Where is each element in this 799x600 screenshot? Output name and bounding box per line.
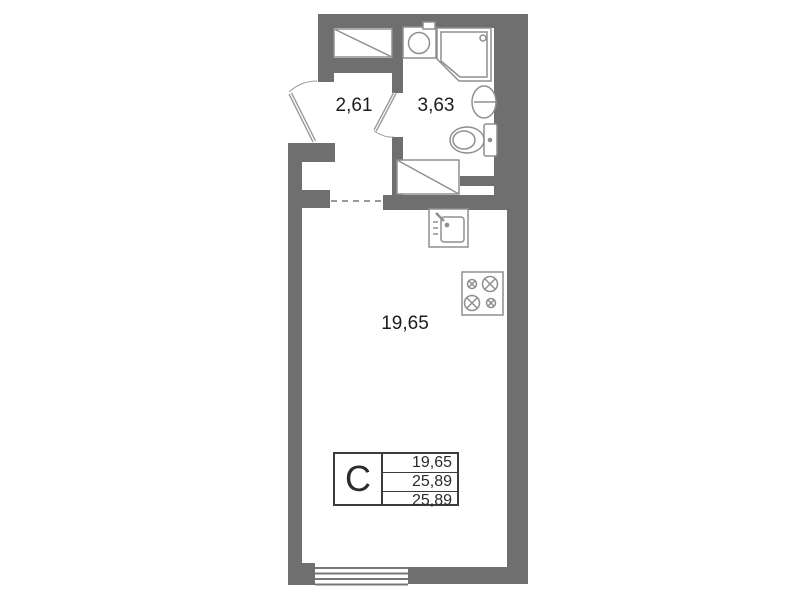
stove-icon xyxy=(462,272,503,315)
floor-plan: 2,61 3,63 19,65 С 19,65 25,89 25,89 xyxy=(0,0,799,600)
plan-symbols xyxy=(0,0,799,600)
window-icon xyxy=(315,567,408,585)
washing-machine-icon xyxy=(397,160,459,194)
kitchen-sink-icon xyxy=(429,209,468,247)
washbasin-icon xyxy=(472,86,496,118)
unit-type-cell: С xyxy=(335,454,383,504)
closet-icon xyxy=(334,29,392,57)
total-area-value: 25,89 xyxy=(383,473,457,492)
bath-sink-icon xyxy=(403,22,436,58)
hallway-area-label: 2,61 xyxy=(330,95,378,117)
toilet-icon xyxy=(450,124,497,156)
shower-cabin-icon xyxy=(437,28,491,81)
area-info-table: С 19,65 25,89 25,89 xyxy=(333,452,459,506)
living-area-value: 19,65 xyxy=(383,454,457,473)
living-area-label: 19,65 xyxy=(378,313,432,335)
overall-area-value: 25,89 xyxy=(383,492,457,510)
entrance-door-icon xyxy=(289,81,317,142)
bathroom-area-label: 3,63 xyxy=(412,95,460,117)
